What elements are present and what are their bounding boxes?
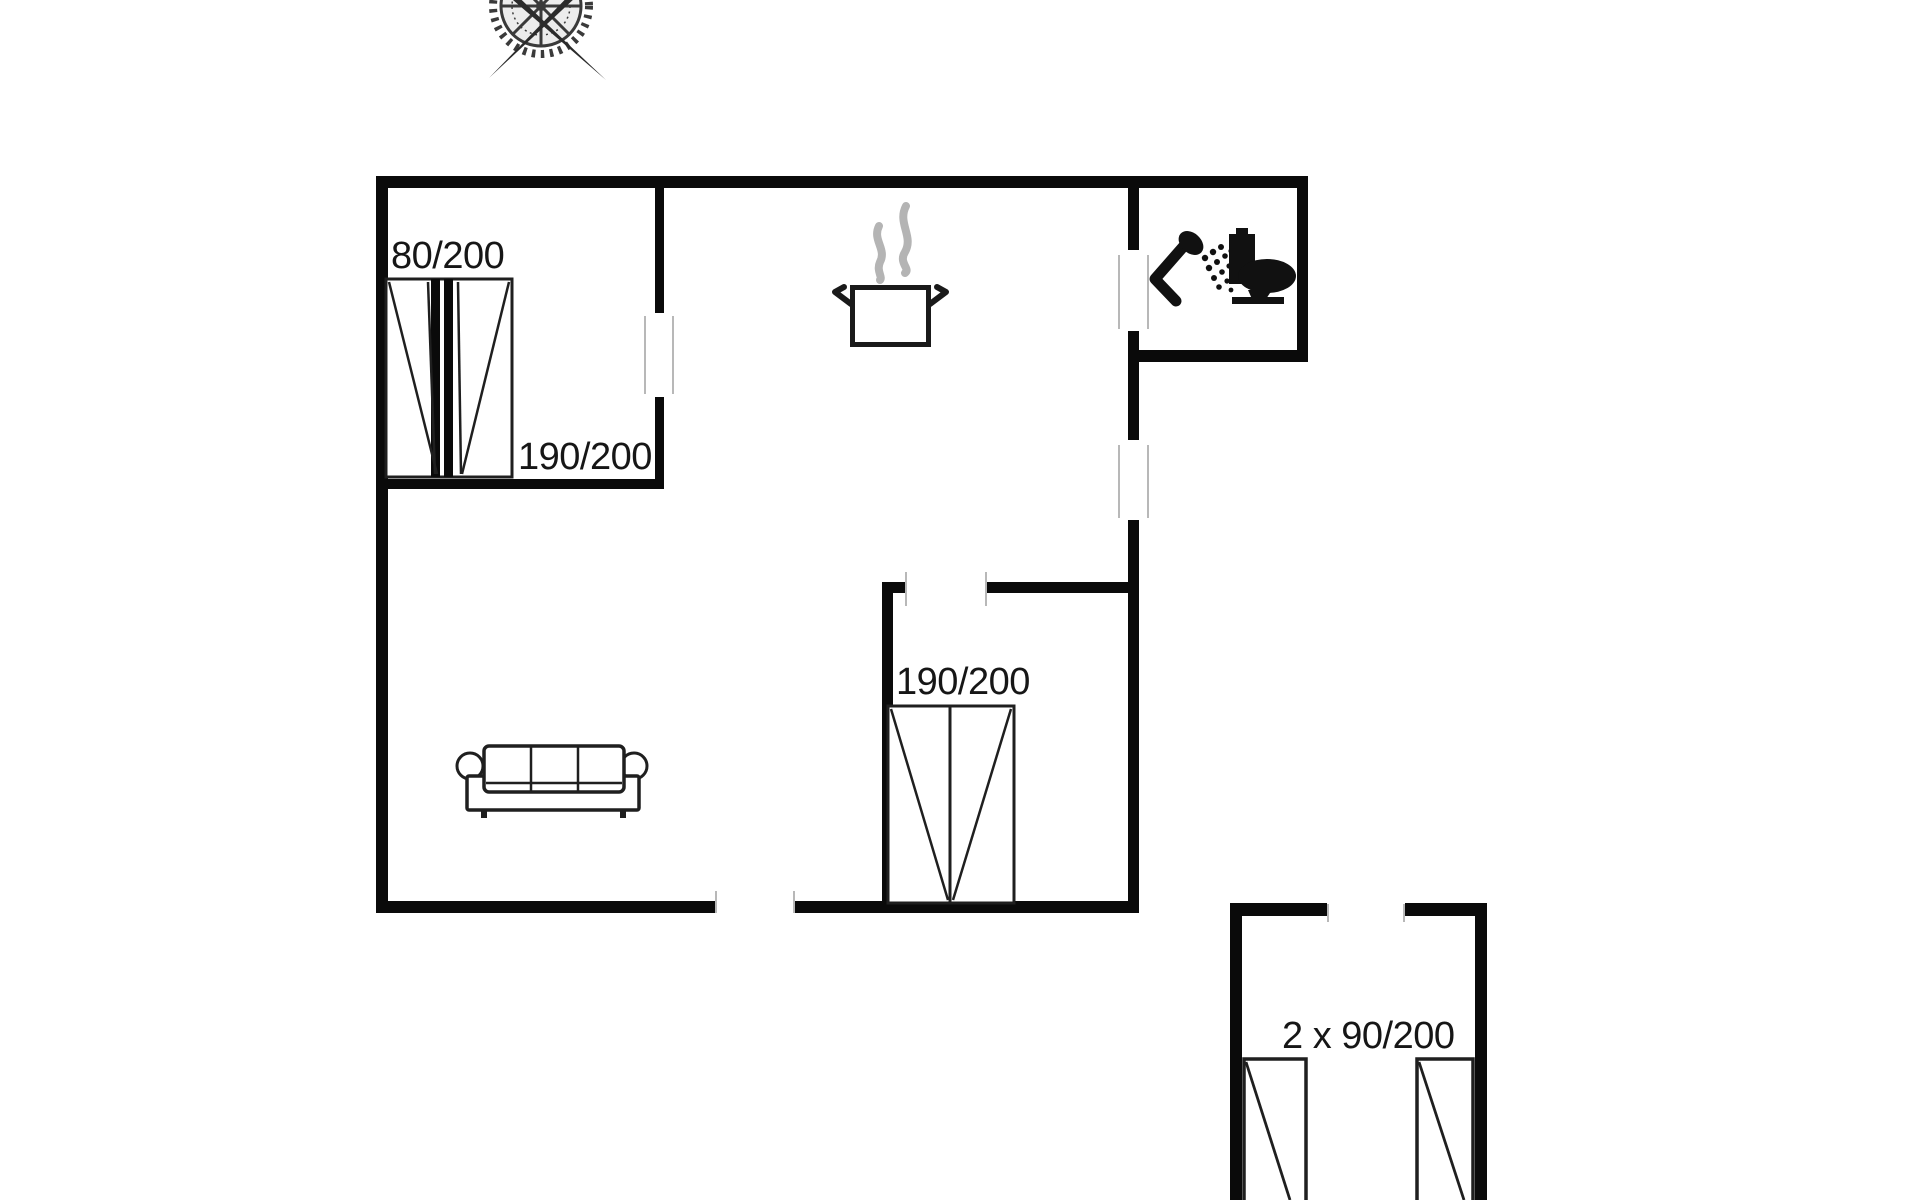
- bed-size-label: 190/200: [518, 438, 652, 476]
- toilet-tank: [1229, 234, 1255, 260]
- wall-right-upper-segment: [1128, 186, 1139, 250]
- twin-beds-icon: [1244, 1059, 1473, 1200]
- pot-handle-left: [835, 287, 851, 304]
- toilet-icon: [1229, 228, 1296, 304]
- shower-icon: [1155, 226, 1238, 301]
- sofa-foot: [620, 810, 626, 818]
- bedroom1-divider-upper: [655, 186, 664, 313]
- annex-right-wall: [1475, 903, 1487, 1200]
- annex-top-wall-left: [1230, 903, 1327, 916]
- bedroom1-bottom-wall: [376, 479, 664, 489]
- bed-size-label: 2 x 90/200: [1282, 1017, 1454, 1055]
- cooking-pot-icon: [835, 287, 946, 345]
- annex-left-wall: [1230, 903, 1242, 1200]
- wall-right-middle-segment: [1128, 331, 1139, 440]
- bathroom-right-wall: [1297, 176, 1308, 362]
- toilet-base: [1232, 297, 1284, 304]
- toilet-bowl: [1238, 259, 1296, 293]
- annex-top-wall-right: [1405, 903, 1487, 916]
- floor-plan-page: 80/200 190/200 190/200 2 x 90/200: [0, 0, 1920, 1200]
- bedroom1-divider-lower: [655, 397, 664, 489]
- steam-wisp: [877, 226, 882, 280]
- bed-size-label: 190/200: [896, 663, 1030, 701]
- sofa-foot: [481, 810, 487, 818]
- wall-right-lower-segment: [1128, 520, 1139, 913]
- single-and-double-bed-icon: [386, 279, 512, 477]
- compass-rose-icon: [463, 0, 619, 80]
- bedroom2-top-wall: [987, 582, 1139, 593]
- double-bed-icon: [888, 706, 1014, 903]
- pot-handle-right: [930, 287, 946, 304]
- sofa-backrest: [484, 746, 624, 792]
- wall-bottom-left-segment: [376, 901, 715, 913]
- floor-plan-drawing: [0, 0, 1920, 1200]
- bed-outline: [1244, 1059, 1306, 1200]
- wall-top: [376, 176, 1308, 188]
- bed-divider-bar: [444, 279, 453, 477]
- bathroom-bottom-wall: [1128, 350, 1308, 362]
- sofa-icon: [457, 746, 647, 818]
- steam-wisp: [903, 206, 908, 273]
- steam-icon: [877, 206, 908, 280]
- bed-size-label: 80/200: [391, 237, 504, 275]
- pot-body: [853, 288, 929, 345]
